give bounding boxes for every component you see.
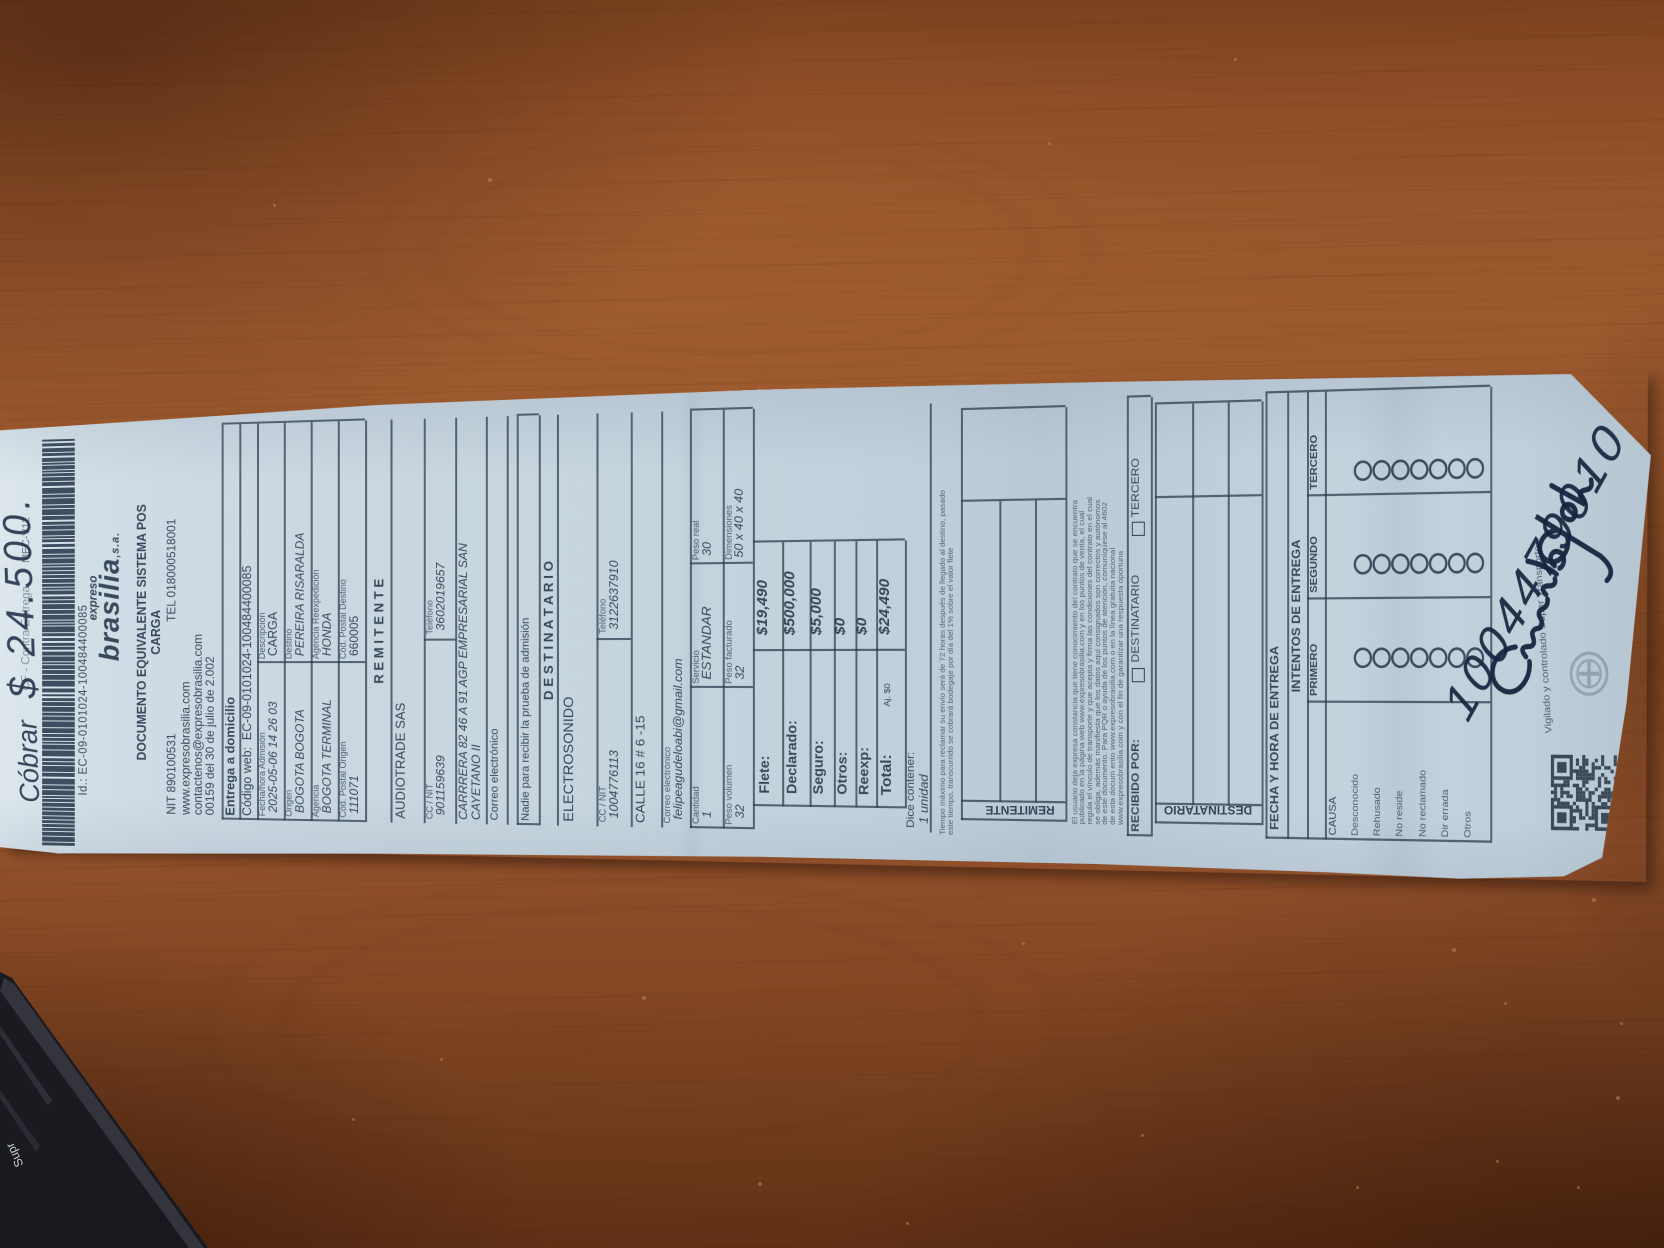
svg-text:1004479010: 1004479010 [1433,412,1448,730]
svg-text:$ 24.500.: $ 24.500. [2,493,45,700]
svg-text:Cóbrar: Cóbrar [11,719,45,803]
